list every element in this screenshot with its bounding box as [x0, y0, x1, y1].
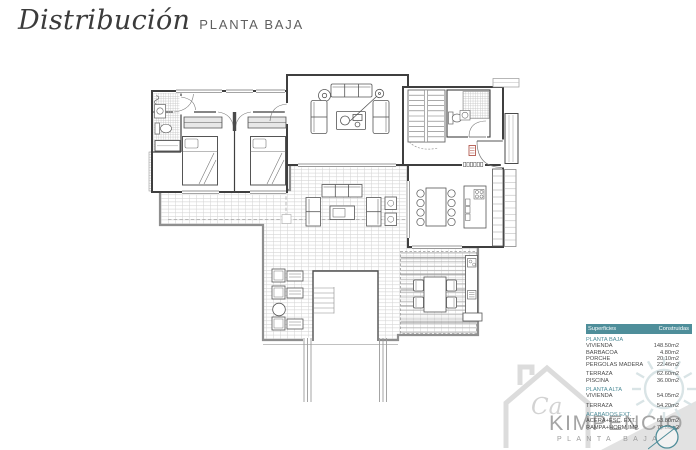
entry-steps	[493, 79, 519, 88]
col-header-construidas: Construidas	[659, 326, 689, 332]
barbecue	[463, 256, 482, 322]
compass-logo-icon	[648, 419, 688, 450]
stairs	[408, 90, 445, 149]
col-header-superficies: Superficies	[588, 326, 616, 332]
door-leaf	[233, 112, 236, 131]
areas-table: Superficies Construidas PLANTA BAJA VIVI…	[586, 324, 692, 431]
section-terraza-piscina: TERRAZA 62.60m2 PISCINA 36.00m2	[586, 371, 692, 384]
page-title: Distribución	[18, 5, 190, 36]
areas-table-header: Superficies Construidas	[586, 324, 692, 334]
bathroom-left	[154, 93, 181, 151]
pool-side-walls	[304, 338, 387, 402]
sink-icon	[462, 112, 468, 118]
table-row: VIVIENDA 54.05m2	[586, 393, 692, 399]
page-header: Distribución PLANTA BAJA	[18, 5, 304, 36]
threshold	[462, 162, 485, 167]
page: Distribución PLANTA BAJA Ca KIMPENCIO PL…	[0, 0, 696, 450]
dining-table	[426, 188, 446, 226]
sink-icon	[157, 108, 163, 114]
page-subtitle: PLANTA BAJA	[199, 17, 304, 32]
radiator	[469, 146, 476, 156]
toilet-icon	[161, 124, 172, 133]
table-row: PERGOLAS MADERA 22.46m2	[586, 362, 692, 368]
section-terraza-alta: TERRAZA 54.20m2	[586, 403, 692, 409]
section-planta-alta: PLANTA ALTA VIVIENDA 54.05m2	[586, 387, 692, 400]
table-row: TERRAZA 54.20m2	[586, 403, 692, 409]
bathroom-top-right	[447, 90, 490, 139]
planters	[505, 114, 519, 247]
outdoor-table	[424, 277, 446, 312]
table-row: PISCINA 36.00m2	[586, 378, 692, 384]
section-planta-baja: PLANTA BAJA VIVIENDA 148.50m2 BARBACOA 4…	[586, 337, 692, 368]
pool	[303, 271, 387, 402]
